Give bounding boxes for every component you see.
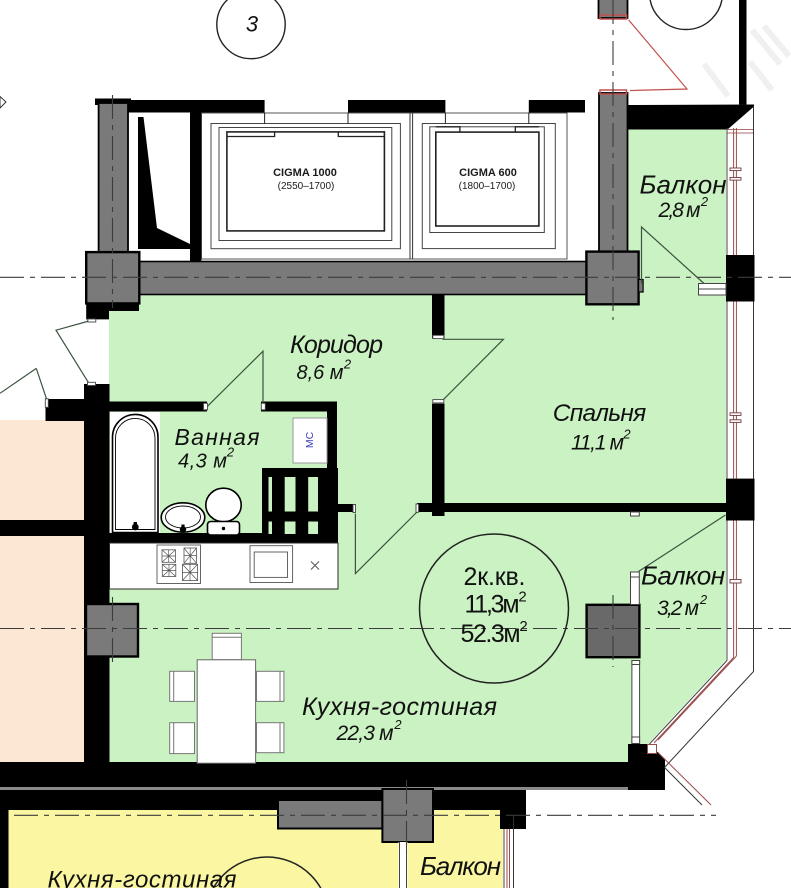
svg-text:Балкон: Балкон (420, 851, 501, 881)
svg-text:2: 2 (226, 445, 235, 460)
svg-text:CIGMA 600: CIGMA 600 (459, 167, 517, 179)
svg-text:2: 2 (393, 717, 402, 732)
svg-text:11,1 м: 11,1 м (571, 432, 624, 455)
svg-text:МС: МС (304, 431, 316, 448)
svg-text:Кухня-гостиная: Кухня-гостиная (48, 867, 237, 888)
svg-text:2: 2 (699, 592, 708, 607)
svg-text:2: 2 (700, 194, 709, 209)
svg-text:2: 2 (519, 618, 527, 635)
svg-text:2: 2 (622, 427, 631, 442)
svg-text:3: 3 (246, 12, 259, 37)
svg-text:22,3 м: 22,3 м (336, 722, 394, 745)
svg-text:4,3 м: 4,3 м (178, 451, 227, 473)
svg-text:2к.кв.: 2к.кв. (464, 563, 526, 591)
svg-text:CIGMA 1000: CIGMA 1000 (273, 167, 337, 179)
svg-text:52.3м: 52.3м (461, 620, 521, 648)
svg-text:(2550–1700): (2550–1700) (278, 181, 335, 192)
svg-text:Ванная: Ванная (175, 424, 260, 450)
svg-text:Балкон: Балкон (640, 170, 727, 200)
svg-text:Балкон: Балкон (641, 561, 725, 591)
svg-text:11,3м: 11,3м (465, 591, 520, 619)
svg-text:(1800–1700): (1800–1700) (459, 181, 516, 192)
svg-text:2: 2 (518, 589, 526, 606)
svg-text:8,6 м: 8,6 м (297, 362, 344, 384)
svg-text:3,2 м: 3,2 м (657, 597, 699, 620)
svg-text:2,8 м: 2,8 м (658, 199, 701, 222)
svg-text:2: 2 (343, 357, 352, 372)
svg-text:Спальня: Спальня (553, 400, 647, 427)
svg-text:Коридор: Коридор (290, 331, 383, 359)
